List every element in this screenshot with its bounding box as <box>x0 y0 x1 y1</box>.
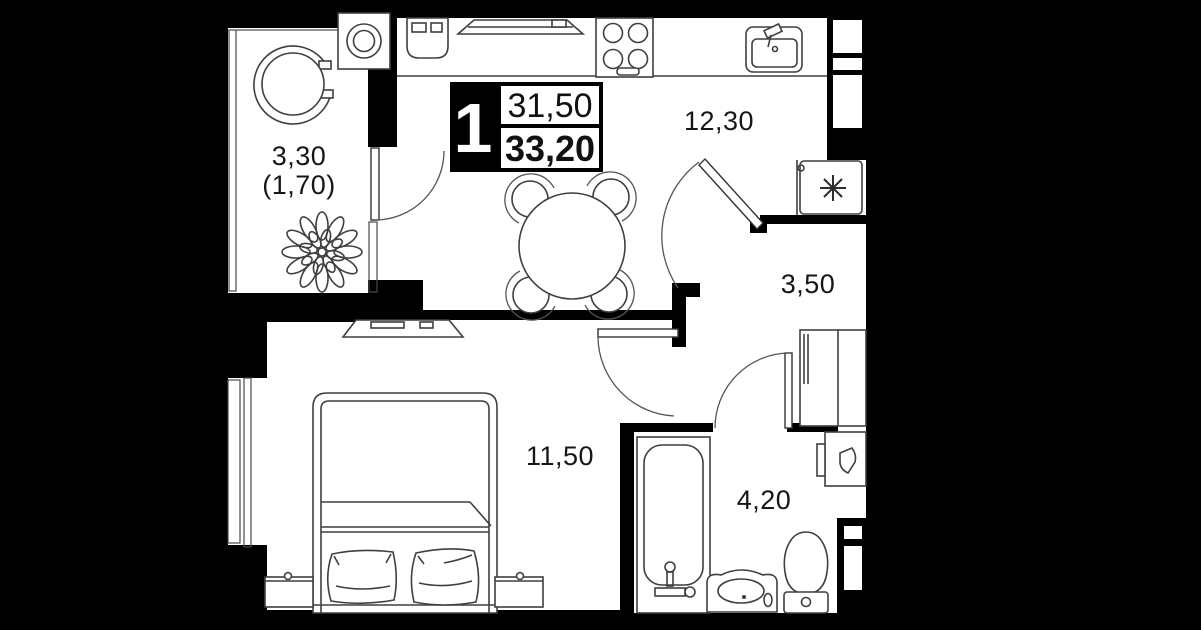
kitchen-sink <box>746 24 802 72</box>
wall-bedroom-left-lower <box>245 545 267 610</box>
dining-table <box>519 193 625 299</box>
balcony-reduced-area-label: (1,70) <box>262 170 336 200</box>
toilet <box>784 532 828 613</box>
desk <box>817 432 866 486</box>
wall-pier <box>368 280 423 322</box>
floor-plan-svg: 1 31,50 33,20 <box>0 0 1201 630</box>
vent-shaft-bottom-1 <box>844 526 862 539</box>
vent-shaft-top-2 <box>833 58 862 70</box>
wall-bathroom-top-left <box>627 423 713 432</box>
vent-shaft-top-3 <box>833 75 862 128</box>
rooms-count-label: 1 <box>454 89 493 167</box>
stove <box>596 18 653 77</box>
hallway-area-label: 3,50 <box>781 269 836 299</box>
bed <box>313 393 497 613</box>
small-appliance <box>407 18 448 58</box>
tv-console <box>343 320 463 337</box>
bathtub <box>637 437 710 613</box>
nightstand <box>265 573 313 608</box>
bedroom-window-bay <box>228 378 267 545</box>
wall-kitchen-bedroom <box>420 310 678 320</box>
washing-machine <box>338 13 390 69</box>
vent-shaft-top-1 <box>833 20 862 53</box>
dining-set <box>505 172 636 320</box>
kitchen-living-area-label: 12,30 <box>684 106 754 136</box>
wardrobe <box>800 330 866 426</box>
bedroom-area-label: 11,50 <box>526 441 594 471</box>
wall-bedroom-left-upper <box>245 322 267 378</box>
fridge <box>797 160 862 215</box>
vent-shaft-bottom-2 <box>844 546 862 590</box>
bathroom-area-label: 4,20 <box>737 485 792 515</box>
pillow <box>328 550 397 603</box>
floor-plan-canvas: 1 31,50 33,20 <box>0 0 1201 630</box>
wall-hallway-top <box>760 215 866 224</box>
vanity-sink <box>707 570 777 612</box>
total-area-label: 33,20 <box>505 128 595 169</box>
papasan-chair <box>254 46 333 124</box>
balcony-area-label: 3,30 <box>272 141 327 171</box>
unit-info-badge: 1 31,50 33,20 <box>450 82 603 172</box>
living-area-label: 31,50 <box>507 87 592 125</box>
nightstand <box>495 573 543 608</box>
cooker-hood <box>458 20 583 34</box>
wall-bedroom-bathroom <box>620 423 634 613</box>
pillow <box>411 549 478 605</box>
